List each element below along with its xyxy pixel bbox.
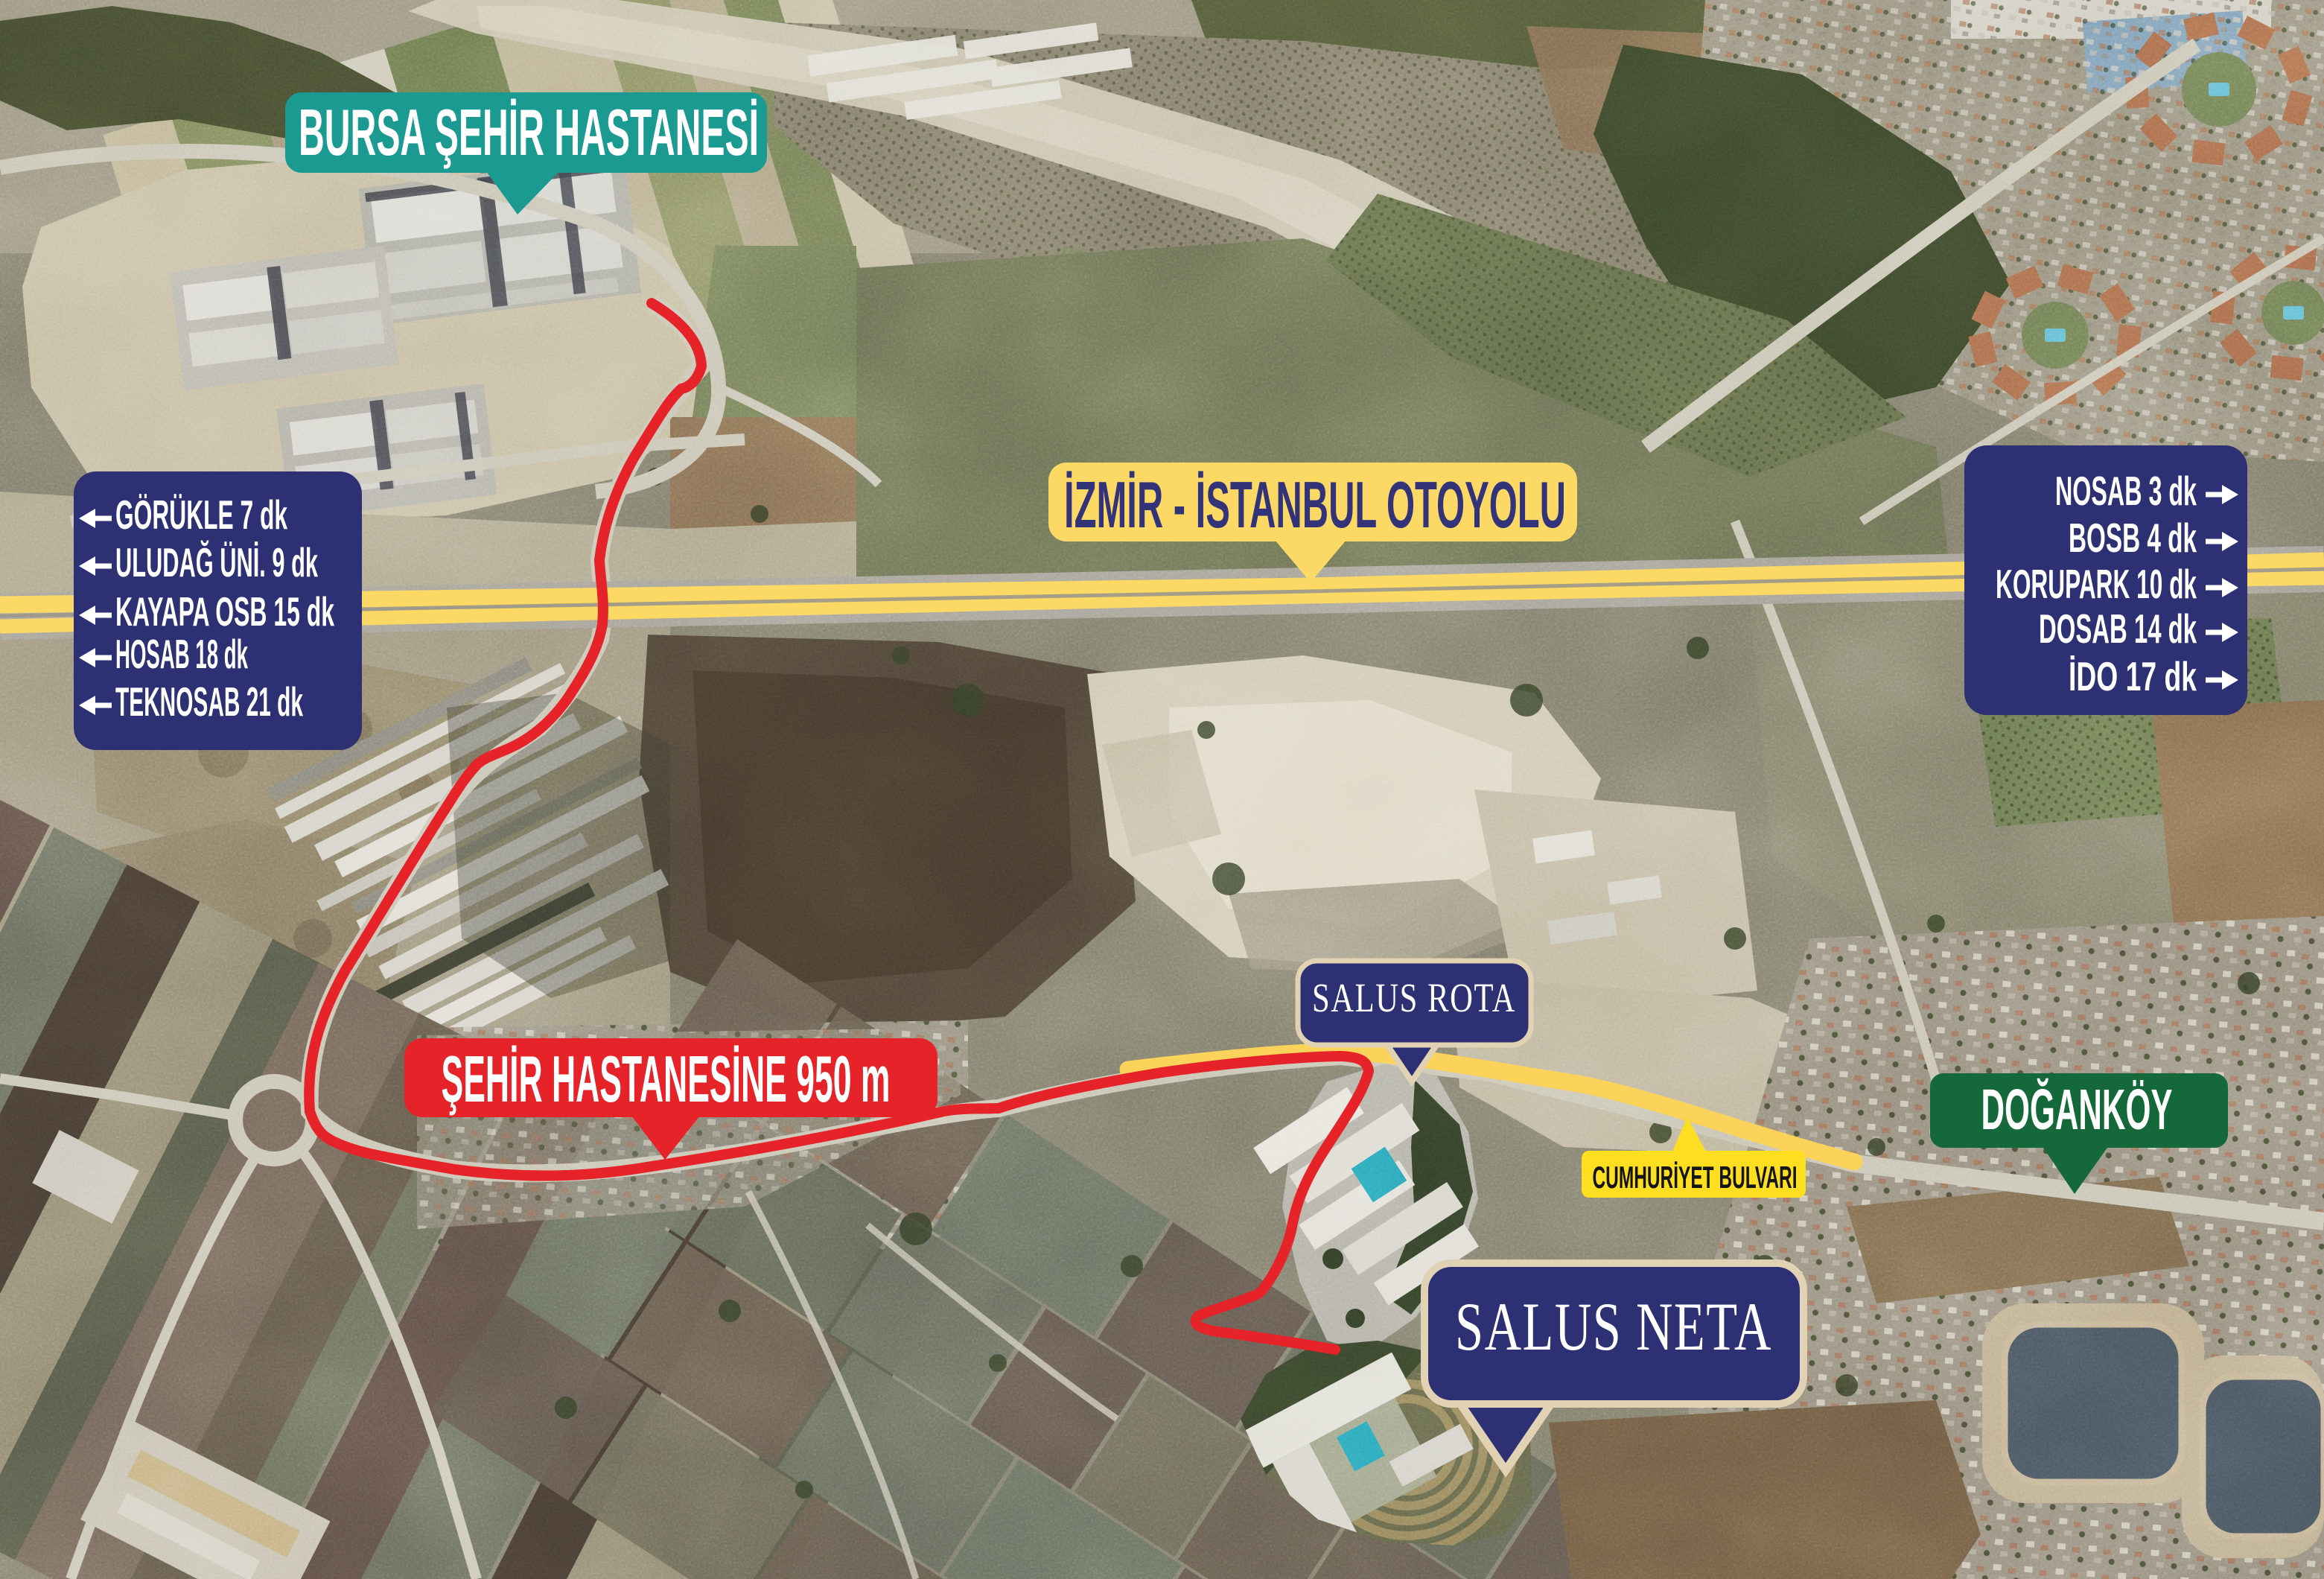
svg-text:İZMİR - İSTANBUL OTOYOLU: İZMİR - İSTANBUL OTOYOLU [1064,468,1566,541]
svg-text:TEKNOSAB 21 dk: TEKNOSAB 21 dk [115,679,303,725]
svg-text:ŞEHİR HASTANESİNE 950 m: ŞEHİR HASTANESİNE 950 m [442,1042,891,1116]
svg-text:DOĞANKÖY: DOĞANKÖY [1981,1078,2173,1142]
svg-text:HOSAB 18 dk: HOSAB 18 dk [115,631,248,677]
svg-text:CUMHURİYET BULVARI: CUMHURİYET BULVARI [1593,1160,1798,1195]
svg-text:KORUPARK 10 dk: KORUPARK 10 dk [1996,561,2197,607]
svg-text:BURSA ŞEHİR HASTANESİ: BURSA ŞEHİR HASTANESİ [299,95,759,169]
svg-text:GÖRÜKLE 7 dk: GÖRÜKLE 7 dk [115,492,287,538]
svg-text:ULUDAĞ ÜNİ. 9 dk: ULUDAĞ ÜNİ. 9 dk [115,539,318,585]
svg-text:KAYAPA OSB 15 dk: KAYAPA OSB 15 dk [115,588,334,635]
svg-text:SALUS ROTA: SALUS ROTA [1312,975,1516,1020]
svg-text:DOSAB 14 dk: DOSAB 14 dk [2039,606,2197,652]
svg-text:SALUS NETA: SALUS NETA [1455,1289,1772,1364]
svg-text:BOSB 4 dk: BOSB 4 dk [2069,515,2197,561]
svg-text:İDO 17 dk: İDO 17 dk [2069,653,2197,699]
svg-text:NOSAB 3 dk: NOSAB 3 dk [2055,468,2197,514]
